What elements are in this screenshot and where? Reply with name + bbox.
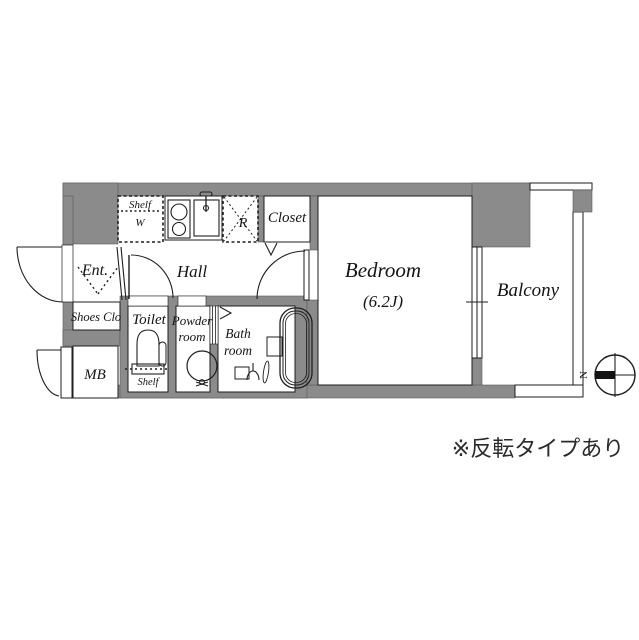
powder-label-2: room bbox=[179, 329, 206, 344]
caption-reversed-type: ※反転タイプあり bbox=[452, 437, 624, 462]
bedroom-label: Bedroom bbox=[345, 258, 421, 282]
shelf-washer-label-1: Shelf bbox=[129, 199, 153, 211]
wall-closet-right bbox=[310, 196, 318, 250]
bath-label-2: room bbox=[224, 343, 252, 358]
closet-label: Closet bbox=[268, 210, 307, 226]
refrigerator-label: R bbox=[238, 216, 248, 231]
bedroom-door-leaf bbox=[304, 250, 309, 300]
powder-doorway bbox=[178, 296, 206, 306]
balcony-wall-top bbox=[530, 183, 592, 190]
powder-label-1: Powder bbox=[171, 313, 213, 328]
wall-top-band bbox=[63, 183, 530, 196]
meter-box-label: MB bbox=[83, 367, 106, 383]
meterbox-door-leaf bbox=[61, 347, 72, 398]
bedroom-size-label: (6.2J) bbox=[363, 292, 403, 311]
toilet-doorway bbox=[128, 296, 168, 306]
wall-divider-lower bbox=[472, 358, 482, 387]
shoes-closet-label: Shoes Clo bbox=[71, 310, 121, 324]
wall-shoescloset-bottom bbox=[63, 330, 120, 346]
hall-label: Hall bbox=[176, 262, 208, 281]
floorplan-svg: Hall Ent. Shoes Clo MB Toilet Shelf Powd… bbox=[0, 0, 639, 640]
wall-left-upper bbox=[63, 196, 73, 245]
wall-strip-r-closet bbox=[258, 196, 264, 242]
entrance-doorway bbox=[62, 245, 73, 302]
room-bedroom bbox=[318, 196, 472, 385]
balcony-wall-east bbox=[573, 212, 583, 397]
balcony-label: Balcony bbox=[497, 280, 560, 301]
entrance-label: Ent. bbox=[81, 262, 108, 279]
toilet-shelf-label: Shelf bbox=[138, 377, 161, 388]
compass-north-label: N bbox=[578, 371, 590, 379]
shelf-washer-label-2: W bbox=[135, 217, 145, 229]
compass-north-bar-icon bbox=[595, 371, 615, 379]
toilet-label: Toilet bbox=[132, 312, 166, 328]
balcony-wall-bottom bbox=[515, 385, 583, 397]
wall-balcony-block bbox=[472, 183, 530, 247]
floorplan-canvas: Hall Ent. Shoes Clo MB Toilet Shelf Powd… bbox=[0, 0, 639, 640]
wall-pillar-topright bbox=[573, 190, 592, 212]
bath-label-1: Bath bbox=[225, 326, 251, 341]
